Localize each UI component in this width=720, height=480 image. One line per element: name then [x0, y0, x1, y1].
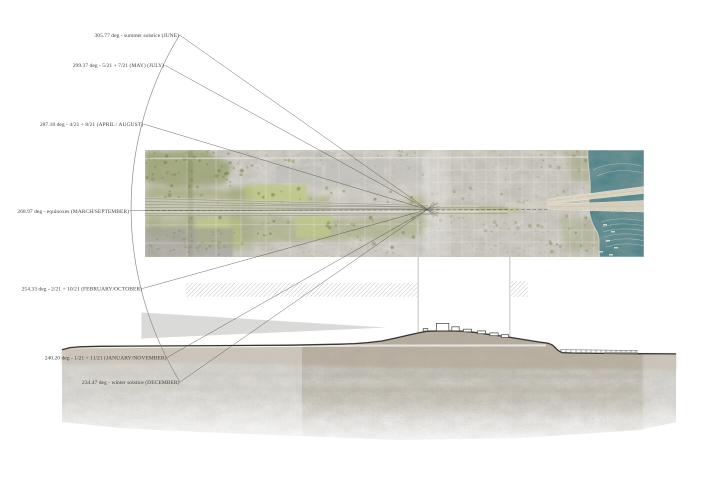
svg-text:268.97 deg - equinoxes (MARCH/: 268.97 deg - equinoxes (MARCH/SEPTEMBER) [17, 208, 129, 215]
svg-text:254.33 deg - 2/21 + 10/21 (FEB: 254.33 deg - 2/21 + 10/21 (FEBRUARY/OCTO… [22, 286, 143, 293]
svg-text:305.77 deg - summer solstice (: 305.77 deg - summer solstice (JUNE) [94, 32, 179, 39]
svg-text:234.47 deg - winter solstice (: 234.47 deg - winter solstice (DECEMBER) [82, 379, 180, 386]
svg-text:299.37 deg - 5/21 + 7/21 (MAY): 299.37 deg - 5/21 + 7/21 (MAY) (JULY) [73, 62, 164, 69]
svg-text:240.20 deg - 1/21 + 11/21 (JAN: 240.20 deg - 1/21 + 11/21 (JANUARY/NOVEM… [45, 355, 167, 362]
svg-text:287.18 deg - 4/21 + 8/21 (APRI: 287.18 deg - 4/21 + 8/21 (APRIL / AUGUST… [40, 121, 143, 128]
